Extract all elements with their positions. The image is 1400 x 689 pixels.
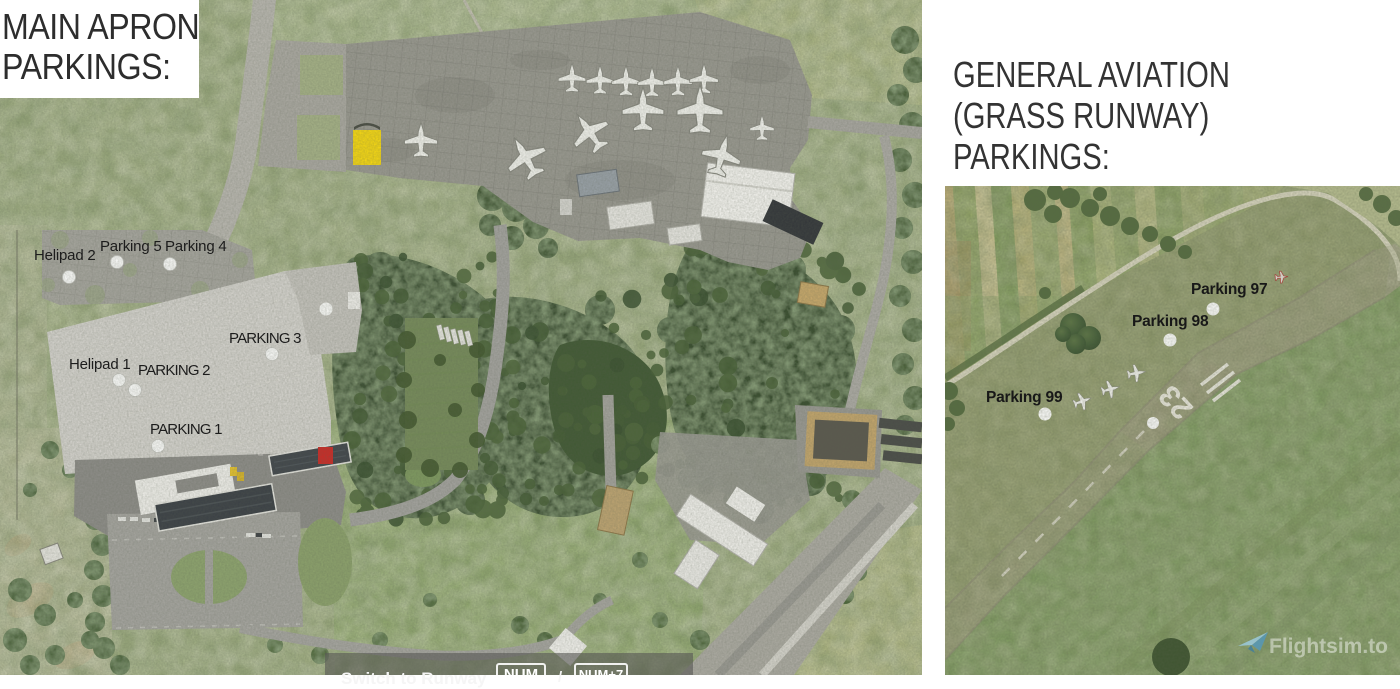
svg-text:Flightsim.to: Flightsim.to <box>1269 635 1388 658</box>
